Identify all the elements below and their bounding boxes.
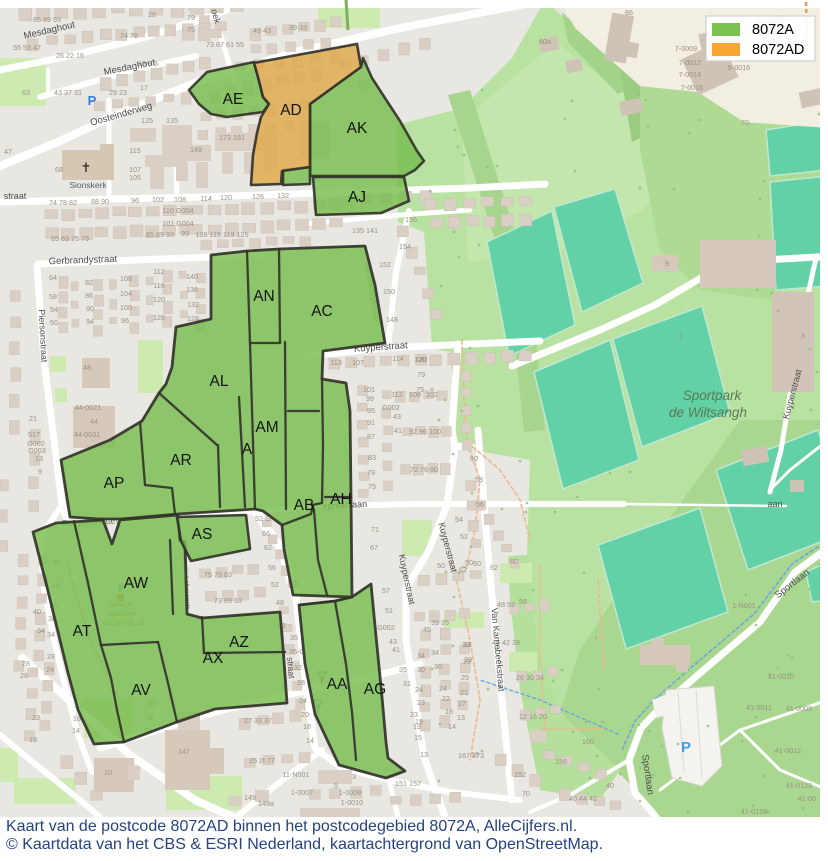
svg-text:147: 147 (178, 747, 190, 756)
svg-text:16: 16 (471, 750, 479, 759)
svg-text:58: 58 (49, 292, 57, 301)
svg-text:AX: AX (203, 650, 224, 667)
svg-text:AJ: AJ (348, 189, 366, 206)
svg-text:28: 28 (297, 678, 305, 687)
svg-text:48: 48 (83, 363, 91, 372)
svg-text:28: 28 (47, 652, 55, 661)
svg-text:Sportpark: Sportpark (683, 388, 743, 403)
svg-text:136: 136 (186, 285, 198, 294)
svg-text:G002: G002 (382, 403, 400, 412)
svg-text:132: 132 (187, 300, 199, 309)
svg-text:13: 13 (35, 454, 43, 463)
svg-text:19: 19 (413, 722, 421, 731)
svg-text:135 141: 135 141 (352, 226, 378, 235)
svg-text:26 30 34: 26 30 34 (516, 673, 544, 682)
svg-text:31: 31 (403, 679, 411, 688)
svg-text:39 33: 39 33 (289, 23, 307, 32)
svg-text:1-0010: 1-0010 (341, 798, 363, 807)
svg-text:46 44 42: 46 44 42 (569, 794, 597, 803)
svg-text:114: 114 (200, 194, 211, 203)
svg-text:102: 102 (426, 390, 438, 399)
svg-text:75 79 83: 75 79 83 (204, 570, 232, 579)
svg-text:100: 100 (120, 303, 132, 312)
svg-text:79: 79 (417, 370, 425, 379)
svg-text:54: 54 (455, 515, 463, 524)
svg-text:aan: aan (767, 499, 782, 509)
svg-text:115: 115 (129, 146, 140, 155)
svg-text:41: 41 (392, 645, 400, 654)
svg-text:26 22 16: 26 22 16 (56, 51, 84, 60)
svg-text:102: 102 (152, 195, 164, 204)
svg-text:35: 35 (290, 633, 298, 642)
svg-text:83: 83 (368, 453, 376, 462)
svg-text:13: 13 (457, 713, 465, 722)
svg-text:AE: AE (223, 91, 244, 108)
svg-text:49 43: 49 43 (253, 26, 271, 35)
svg-text:154: 154 (399, 242, 411, 251)
svg-text:173 181: 173 181 (219, 133, 245, 142)
svg-text:25: 25 (461, 673, 469, 682)
svg-text:68: 68 (55, 165, 63, 174)
svg-text:24: 24 (439, 684, 447, 693)
svg-text:80a: 80a (539, 37, 551, 46)
svg-text:92 96 100: 92 96 100 (409, 427, 441, 436)
svg-text:11-N001: 11-N001 (282, 770, 309, 779)
svg-text:149: 149 (190, 145, 202, 154)
svg-text:P: P (88, 93, 97, 108)
svg-text:99: 99 (181, 229, 189, 238)
svg-text:56: 56 (476, 500, 484, 509)
svg-text:AS: AS (192, 526, 213, 543)
svg-text:12 16 20: 12 16 20 (519, 712, 547, 721)
svg-text:1-0009: 1-0009 (339, 788, 361, 797)
svg-text:40: 40 (33, 607, 41, 616)
svg-text:41-00: 41-00 (798, 794, 816, 803)
svg-text:45: 45 (423, 625, 431, 634)
svg-text:G002: G002 (377, 623, 395, 632)
svg-text:140: 140 (186, 272, 198, 281)
svg-text:64: 64 (49, 273, 57, 282)
svg-text:33: 33 (462, 640, 470, 649)
svg-text:de Wiltsangh: de Wiltsangh (669, 405, 747, 420)
svg-text:22: 22 (442, 694, 450, 703)
svg-text:34: 34 (37, 626, 45, 635)
svg-text:5: 5 (334, 781, 338, 790)
svg-text:58: 58 (519, 597, 527, 606)
svg-text:135: 135 (166, 116, 178, 125)
svg-text:7-0016: 7-0016 (681, 83, 703, 92)
svg-text:72 76 80: 72 76 80 (410, 465, 438, 474)
svg-text:109 115 119 125: 109 115 119 125 (196, 230, 249, 239)
svg-text:105: 105 (129, 173, 141, 182)
svg-text:AA: AA (327, 676, 348, 693)
svg-text:39 35: 39 35 (431, 618, 449, 627)
svg-text:48: 48 (276, 598, 284, 607)
svg-text:1-N001: 1-N001 (732, 601, 756, 610)
svg-text:60: 60 (473, 559, 481, 568)
svg-text:9: 9 (38, 467, 42, 476)
svg-text:44: 44 (90, 417, 98, 426)
svg-text:10: 10 (104, 768, 112, 777)
svg-text:30: 30 (417, 665, 425, 674)
svg-text:30: 30 (434, 662, 442, 671)
svg-text:17: 17 (140, 83, 148, 92)
svg-text:116: 116 (153, 281, 164, 290)
svg-text:63: 63 (22, 88, 30, 97)
svg-text:149: 149 (244, 793, 256, 802)
svg-text:P: P (681, 739, 691, 756)
svg-text:29 23: 29 23 (109, 88, 127, 97)
svg-text:AV: AV (131, 682, 151, 699)
svg-text:41-0012: 41-0012 (775, 746, 801, 755)
svg-text:65 69 75 79: 65 69 75 79 (51, 234, 89, 243)
svg-text:43 37 31: 43 37 31 (54, 88, 82, 97)
svg-text:58: 58 (475, 475, 483, 484)
svg-text:AZ: AZ (229, 634, 249, 651)
svg-text:28: 28 (148, 10, 156, 19)
svg-text:108: 108 (174, 195, 186, 204)
svg-text:24: 24 (299, 696, 307, 705)
svg-text:51: 51 (385, 606, 393, 615)
svg-text:82: 82 (85, 278, 93, 287)
svg-text:34: 34 (431, 648, 439, 657)
svg-text:52: 52 (460, 532, 468, 541)
svg-text:60: 60 (470, 454, 478, 463)
svg-text:86: 86 (625, 8, 633, 17)
svg-text:26: 26 (20, 671, 28, 680)
svg-text:156: 156 (555, 757, 567, 766)
svg-text:41-0010: 41-0010 (768, 672, 794, 681)
svg-text:A: A (242, 441, 253, 458)
svg-text:8072A: 8072A (752, 22, 794, 38)
svg-text:AT: AT (73, 623, 92, 640)
svg-text:85 89 93: 85 89 93 (146, 230, 174, 239)
svg-text:94: 94 (86, 317, 94, 326)
svg-text:23: 23 (32, 713, 40, 722)
svg-text:AG: AG (364, 681, 386, 698)
svg-text:40: 40 (606, 781, 614, 790)
svg-text:120: 120 (153, 295, 165, 304)
svg-text:112: 112 (391, 390, 402, 399)
svg-text:125: 125 (141, 116, 153, 125)
svg-text:150: 150 (383, 287, 395, 296)
svg-text:44-0031: 44-0031 (74, 430, 100, 439)
svg-text:75: 75 (187, 25, 195, 34)
svg-text:AM: AM (255, 419, 278, 436)
svg-text:14: 14 (448, 722, 456, 731)
svg-text:152: 152 (379, 260, 391, 269)
svg-text:8072AD: 8072AD (752, 42, 804, 58)
svg-text:27 33 37: 27 33 37 (244, 716, 272, 725)
svg-text:7-0012: 7-0012 (679, 58, 701, 67)
svg-text:52: 52 (271, 580, 279, 589)
svg-text:113: 113 (330, 358, 341, 367)
svg-text:41-0009: 41-0009 (786, 704, 812, 713)
svg-text:18: 18 (445, 707, 453, 716)
svg-text:50: 50 (50, 318, 58, 327)
svg-text:5-0016: 5-0016 (728, 63, 750, 72)
svg-text:AL: AL (210, 373, 229, 390)
svg-text:90: 90 (86, 304, 94, 313)
svg-text:54: 54 (50, 305, 58, 314)
svg-text:straat: straat (4, 191, 27, 201)
svg-text:19: 19 (29, 735, 37, 744)
svg-text:66: 66 (262, 529, 270, 538)
svg-text:20: 20 (301, 710, 309, 719)
svg-text:AD: AD (280, 102, 302, 119)
svg-text:126: 126 (153, 313, 165, 322)
svg-text:9: 9 (665, 259, 669, 268)
svg-text:18: 18 (303, 722, 311, 731)
svg-text:straat: straat (285, 657, 297, 680)
svg-text:28: 28 (22, 659, 30, 668)
svg-text:110 G004: 110 G004 (162, 206, 193, 215)
svg-text:62: 62 (264, 543, 272, 552)
svg-text:3: 3 (801, 331, 805, 340)
svg-text:57: 57 (382, 586, 390, 595)
svg-text:1-0007: 1-0007 (291, 788, 313, 797)
svg-text:126: 126 (252, 192, 264, 201)
svg-text:17: 17 (458, 699, 466, 708)
svg-text:24: 24 (415, 685, 423, 694)
svg-text:7-0009: 7-0009 (675, 44, 697, 53)
svg-text:21: 21 (460, 688, 468, 697)
svg-text:14: 14 (72, 726, 80, 735)
svg-text:15: 15 (414, 733, 422, 742)
svg-text:60: 60 (510, 557, 518, 566)
svg-text:114: 114 (392, 354, 403, 363)
svg-text:AR: AR (170, 452, 192, 469)
svg-text:517: 517 (28, 430, 40, 439)
svg-text:62: 62 (490, 563, 498, 572)
svg-text:25 2t 77: 25 2t 77 (249, 756, 275, 765)
svg-text:34: 34 (47, 630, 55, 639)
svg-text:120: 120 (415, 355, 427, 364)
svg-text:75: 75 (416, 385, 424, 394)
svg-text:1: 1 (679, 331, 683, 340)
svg-text:107: 107 (352, 358, 364, 367)
svg-text:41-0123: 41-0123 (786, 781, 812, 790)
svg-text:✝: ✝ (81, 160, 92, 175)
svg-text:101 G004: 101 G004 (162, 219, 194, 228)
svg-text:62: 62 (459, 565, 467, 574)
svg-text:AP: AP (104, 475, 125, 492)
svg-text:AB: AB (294, 497, 315, 514)
svg-text:95: 95 (367, 406, 375, 415)
svg-text:152: 152 (514, 770, 526, 779)
svg-text:75: 75 (368, 482, 376, 491)
svg-text:71: 71 (371, 525, 379, 534)
svg-text:23: 23 (417, 698, 425, 707)
svg-text:91: 91 (367, 418, 375, 427)
svg-text:112: 112 (153, 267, 164, 276)
svg-text:35: 35 (399, 665, 407, 674)
svg-text:87: 87 (367, 432, 375, 441)
svg-text:156: 156 (405, 215, 417, 224)
svg-text:AH: AH (330, 491, 352, 508)
svg-text:73 67 61 55: 73 67 61 55 (206, 40, 244, 49)
svg-text:47: 47 (4, 147, 12, 156)
svg-text:148: 148 (386, 315, 398, 324)
svg-text:AW: AW (124, 575, 149, 592)
svg-text:79: 79 (187, 13, 195, 22)
svg-text:21: 21 (29, 414, 37, 423)
svg-text:151 157: 151 157 (395, 779, 421, 788)
svg-text:3: 3 (352, 772, 356, 781)
svg-text:7-0014: 7-0014 (679, 70, 701, 79)
svg-text:74 78: 74 78 (120, 31, 138, 40)
svg-text:AC: AC (311, 303, 333, 320)
svg-text:AN: AN (253, 288, 275, 305)
svg-text:41: 41 (394, 426, 402, 435)
svg-text:86: 86 (85, 291, 93, 300)
svg-text:96: 96 (121, 316, 129, 325)
svg-text:70: 70 (522, 789, 530, 798)
svg-text:132: 132 (277, 191, 289, 200)
svg-text:41-0011: 41-0011 (746, 703, 772, 712)
svg-text:70: 70 (741, 118, 749, 127)
svg-text:101: 101 (363, 385, 375, 394)
svg-text:55 53 47: 55 53 47 (13, 43, 41, 52)
svg-text:29: 29 (464, 655, 472, 664)
svg-text:24: 24 (46, 665, 54, 674)
svg-text:104: 104 (120, 289, 132, 298)
svg-text:67: 67 (370, 543, 378, 552)
svg-text:149a: 149a (258, 799, 274, 808)
svg-text:79: 79 (367, 468, 375, 477)
svg-text:14: 14 (306, 736, 314, 745)
svg-text:AK: AK (347, 120, 368, 137)
svg-text:73 69 63: 73 69 63 (214, 596, 242, 605)
svg-text:160: 160 (582, 737, 594, 746)
svg-text:88 90: 88 90 (91, 197, 109, 206)
svg-text:13: 13 (420, 750, 428, 759)
svg-text:120: 120 (220, 193, 232, 202)
svg-text:96: 96 (131, 196, 139, 205)
svg-text:74 78 82: 74 78 82 (49, 198, 77, 207)
svg-text:23: 23 (410, 710, 418, 719)
svg-text:99: 99 (366, 394, 374, 403)
svg-text:44-0021: 44-0021 (75, 403, 101, 412)
svg-text:50: 50 (437, 561, 445, 570)
svg-text:41-0128: 41-0128 (741, 807, 767, 816)
svg-text:34: 34 (417, 651, 425, 660)
svg-text:108: 108 (120, 274, 132, 283)
svg-text:Sionskerk: Sionskerk (69, 180, 107, 190)
svg-text:56: 56 (268, 563, 276, 572)
svg-text:43: 43 (393, 412, 401, 421)
